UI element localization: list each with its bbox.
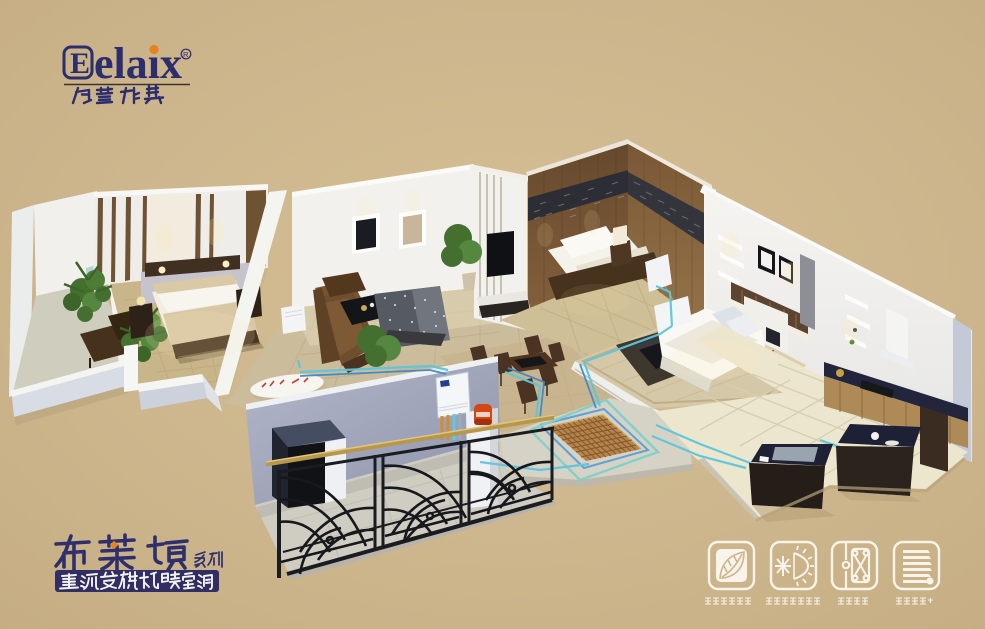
svg-text:elaix: elaix [94, 39, 182, 88]
svg-text:E: E [70, 47, 90, 80]
svg-text:R: R [183, 50, 189, 59]
